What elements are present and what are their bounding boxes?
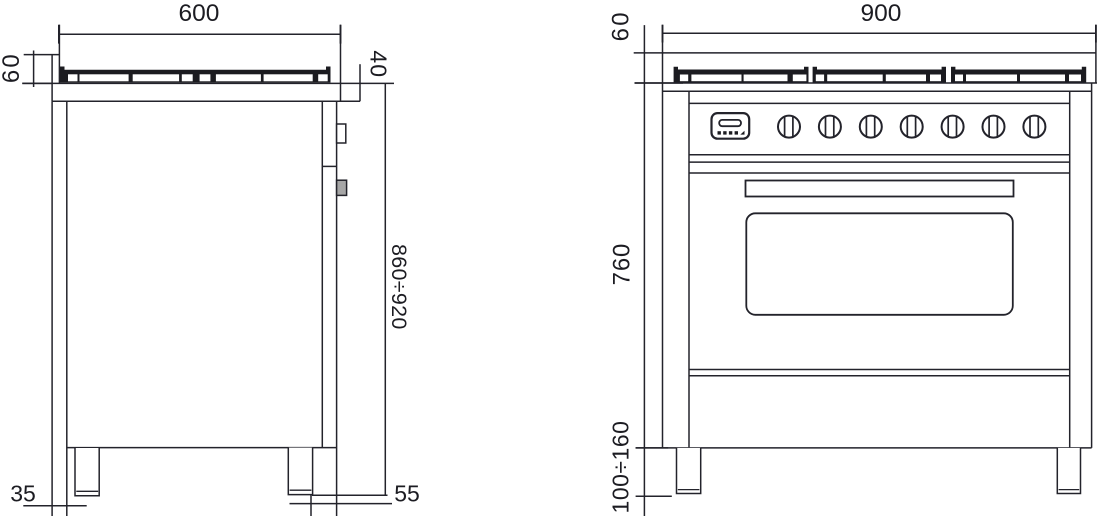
svg-text:900: 900 xyxy=(861,0,902,27)
svg-text:100÷160: 100÷160 xyxy=(607,421,633,514)
svg-text:35: 35 xyxy=(10,481,36,507)
svg-text:600: 600 xyxy=(179,0,220,27)
svg-text:860÷920: 860÷920 xyxy=(387,244,411,330)
svg-text:40: 40 xyxy=(365,50,391,78)
svg-text:55: 55 xyxy=(394,481,420,507)
svg-text:760: 760 xyxy=(609,243,636,285)
svg-text:60: 60 xyxy=(0,52,25,83)
svg-text:60: 60 xyxy=(607,10,634,41)
